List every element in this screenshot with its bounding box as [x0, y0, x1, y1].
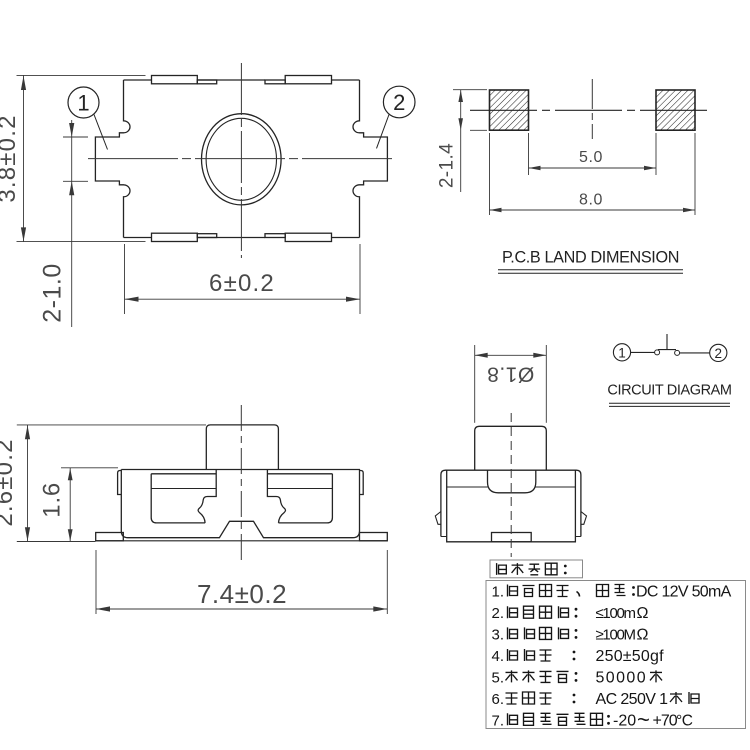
svg-text:4.: 4. — [492, 648, 505, 665]
svg-text:2.6±0.2: 2.6±0.2 — [0, 438, 18, 526]
svg-text:8.0: 8.0 — [579, 192, 603, 209]
svg-text:6.: 6. — [492, 691, 505, 708]
svg-text:P.C.B LAND DIMENSION: P.C.B LAND DIMENSION — [502, 249, 679, 267]
svg-text:1: 1 — [77, 91, 89, 116]
svg-text:AC 250V 1: AC 250V 1 — [596, 691, 669, 708]
svg-text:Ø1.8: Ø1.8 — [487, 363, 535, 386]
svg-text:2-1.0: 2-1.0 — [39, 263, 67, 322]
svg-text:~: ~ — [637, 707, 650, 732]
svg-text:≤100m: ≤100m — [596, 605, 636, 622]
svg-text:°C: °C — [676, 712, 693, 729]
svg-text:2: 2 — [715, 346, 723, 361]
svg-text:1.6: 1.6 — [39, 482, 66, 518]
svg-text:5.: 5. — [492, 669, 505, 686]
svg-text:5.0: 5.0 — [579, 149, 603, 166]
svg-text:2: 2 — [393, 90, 405, 115]
svg-text:7.4±0.2: 7.4±0.2 — [197, 579, 287, 609]
svg-text:2.: 2. — [492, 605, 505, 622]
svg-text:-20: -20 — [613, 712, 636, 729]
svg-text:Ω: Ω — [637, 626, 649, 643]
svg-text:1: 1 — [618, 345, 626, 360]
svg-text:2-1.4: 2-1.4 — [437, 143, 458, 188]
svg-text:≥100M: ≥100M — [596, 626, 636, 643]
svg-text:DC 12V 50mA: DC 12V 50mA — [636, 584, 732, 601]
svg-text:250±50gf: 250±50gf — [596, 648, 665, 665]
svg-text:+70: +70 — [653, 712, 678, 729]
svg-text:1.: 1. — [492, 584, 505, 601]
svg-text:CIRCUIT DIAGRAM: CIRCUIT DIAGRAM — [607, 383, 731, 399]
svg-text:50000: 50000 — [596, 669, 648, 686]
svg-text:Ω: Ω — [637, 605, 649, 622]
svg-text:3.8±0.2: 3.8±0.2 — [0, 114, 21, 202]
svg-text:6±0.2: 6±0.2 — [209, 270, 275, 297]
svg-text:7.: 7. — [492, 712, 505, 729]
svg-text:3.: 3. — [492, 626, 505, 643]
